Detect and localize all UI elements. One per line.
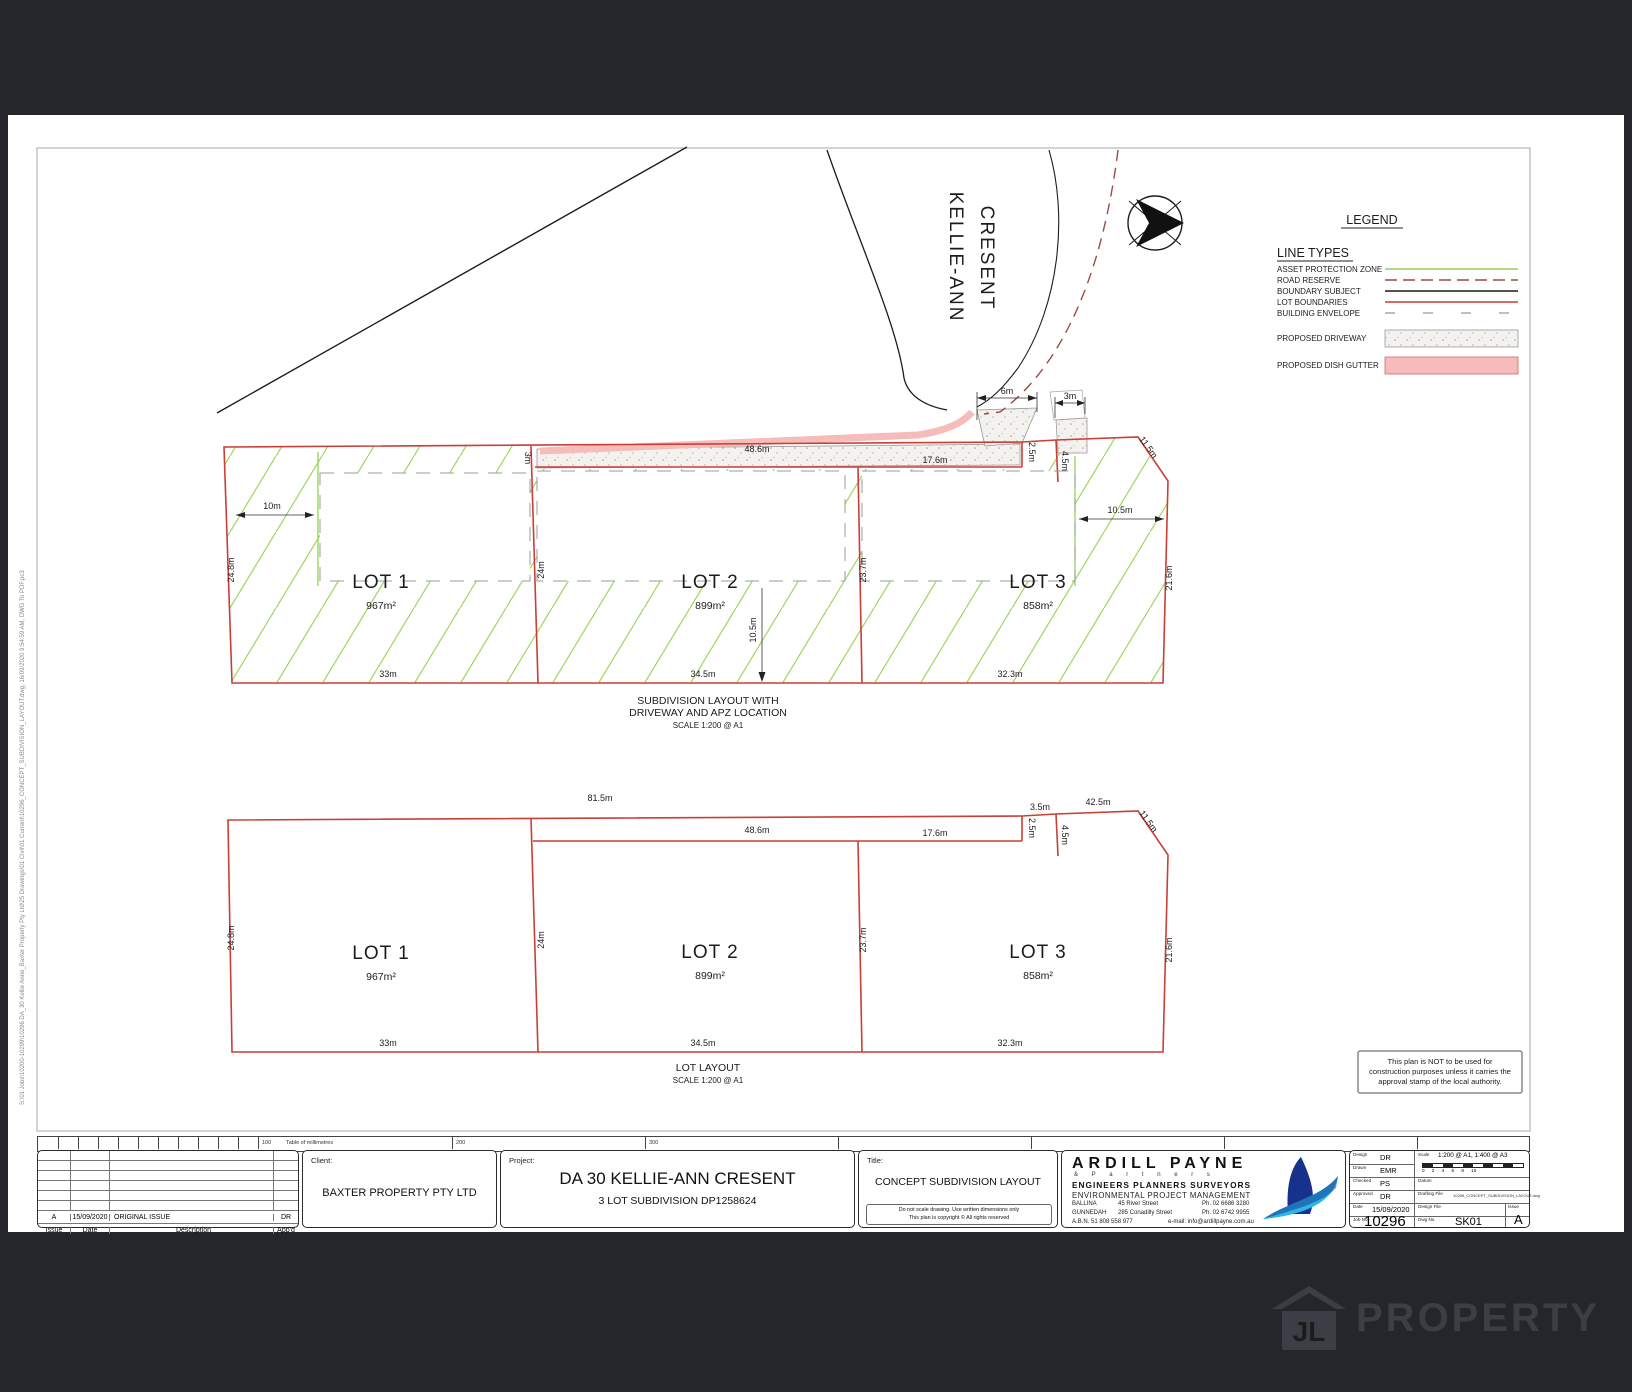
office-address: 285 Conadilly Street [1118,1210,1202,1216]
dim-label: 24.8m [226,925,236,950]
firm-name: ARDILL PAYNE [1072,1155,1247,1173]
note-box: This plan is NOT to be used for construc… [1358,1051,1522,1093]
revision-date: 15/09/2020 [71,1214,110,1221]
checked-label: Checked [1353,1178,1371,1183]
ruler-tick [1031,1137,1032,1149]
dim-label: 81.5m [587,793,612,803]
firm-partners: & P a r t n e r s [1074,1172,1216,1178]
dim-label: 3.5m [1030,802,1050,812]
lot-area: 967m² [366,600,396,612]
office-city: BALLINA [1072,1201,1118,1207]
job-number: 10296 [1364,1213,1406,1230]
street-name-line2: CRESENT [976,206,997,311]
envelope2-cover [537,471,845,581]
project-subtitle: 3 LOT SUBDIVISION DP1258624 [501,1195,854,1207]
top-plan-caption: DRIVEWAY AND APZ LOCATION [629,707,787,719]
title-box: Title: CONCEPT SUBDIVISION LAYOUT Do not… [858,1150,1058,1228]
note-line: construction purposes unless it carries … [1369,1067,1511,1076]
lot-boundaries-bottom [228,811,1168,1052]
revision-col-appd: App'd [273,1227,298,1234]
dim-label: 24m [536,561,546,579]
lot-name: LOT 2 [681,942,738,963]
revision-description: ORIGINAL ISSUE [110,1214,273,1221]
dim-label: 10.5m [748,617,758,642]
dim-label: 24.8m [226,557,236,582]
bottom-plan-caption: LOT LAYOUT [676,1062,741,1074]
watermark-monogram: JL [1293,1316,1326,1347]
revision-table: A 15/09/2020 ORIGINAL ISSUE DR Issue Dat… [37,1150,299,1228]
revision-col-date: Date [71,1227,110,1234]
screenshot-canvas: 6m 3m 2.5m 4.5m 48.6m 17.6m 11.5m 3m 10m… [0,0,1632,1392]
street-label: KELLIE-ANN CRESENT [945,192,997,323]
top-plan: 6m 3m 2.5m 4.5m 48.6m 17.6m 11.5m 3m 10m… [217,147,1174,730]
scale-label: Scale [1418,1152,1430,1157]
dim-label: 24m [536,931,546,949]
ruler-tick [1224,1137,1225,1149]
revision-issue: A [38,1214,71,1221]
legend-entry-label: ROAD RESERVE [1277,276,1340,285]
revision-col-issue: Issue [38,1227,71,1234]
dim-label: 3m [523,452,533,465]
note-line: This plan is NOT to be used for [1388,1057,1493,1066]
ruler-tick [452,1137,453,1149]
lot-name: LOT 3 [1009,942,1066,963]
drafting-file-label: Drafting File [1418,1191,1443,1196]
ruler-tick [645,1137,646,1149]
legend-title: LEGEND [1346,213,1397,227]
office-city: GUNNEDAH [1072,1210,1118,1216]
dwg-no-label: Dwg No. [1418,1217,1436,1222]
lot-name: LOT 2 [681,572,738,593]
disclaimer-line: This plan is copyright © All rights rese… [867,1215,1051,1221]
dim-label: 34.5m [690,1038,715,1048]
ruler-tick [1417,1137,1418,1149]
scale-bar-ticks: 0 2 4 6 8 10 [1422,1168,1526,1173]
dim-label: 6m [1001,386,1014,396]
lot-area: 899m² [695,970,725,982]
firm-office-row: BALLINA 45 River Street Ph. 02 6686 3280 [1072,1201,1262,1207]
lot-area: 858m² [1023,600,1053,612]
dim-label: 23.7m [858,927,868,952]
dim-label: 42.5m [1085,797,1110,807]
dim-label: 3m [1064,391,1077,401]
boundary-subject-line [217,147,687,413]
disclaimer-line: Do not scale drawing. Use written dimens… [867,1207,1051,1213]
client-box: Client: BAXTER PROPERTY PTY LTD [302,1150,497,1228]
plot-file-path: S:\01 Jobs\10200-10299\10296 DA_30 Kelli… [20,570,26,1105]
disclaimer-box: Do not scale drawing. Use written dimens… [866,1204,1052,1225]
legend-entry-label: BUILDING ENVELOPE [1277,309,1360,318]
date-label: Date [1353,1204,1363,1209]
dwg-no-value: SK01 [1455,1216,1482,1228]
legend-gutter-sample [1385,357,1518,374]
approved-label: Approved [1353,1191,1373,1196]
revision-row: A 15/09/2020 ORIGINAL ISSUE DR [38,1210,298,1223]
client-label: Client: [311,1156,332,1165]
lot3-driveway [1056,418,1087,453]
dim-label: 34.5m [690,669,715,679]
issue-label: Issue [1508,1204,1519,1209]
top-plan-scale: SCALE 1:200 @ A1 [673,721,744,730]
top-plan-caption: SUBDIVISION LAYOUT WITH [637,695,778,707]
ruler-number: 200 [456,1140,465,1146]
dim-label: 21.6m [1164,937,1174,962]
title-label: Title: [867,1156,883,1165]
legend-entry-label: LOT BOUNDARIES [1277,298,1348,307]
firm-disciplines: ENGINEERS PLANNERS SURVEYORS [1072,1180,1251,1190]
drawing-title: CONCEPT SUBDIVISION LAYOUT [859,1176,1057,1188]
ruler-tick [838,1137,839,1149]
design-value: DR [1380,1153,1391,1162]
legend-driveway-sample [1385,330,1518,347]
firm-office-row: GUNNEDAH 285 Conadilly Street Ph. 02 674… [1072,1210,1262,1216]
note-line: approval stamp of the local authority. [1378,1077,1502,1086]
lot-name: LOT 1 [352,572,409,593]
project-title: DA 30 KELLIE-ANN CRESENT [501,1169,854,1189]
ruler-ticks [58,1137,259,1149]
lot-area: 858m² [1023,970,1053,982]
revision-header: Issue Date Description App'd [38,1223,298,1236]
firm-abn-row: A.B.N. 51 808 558 977 e-mail: info@ardil… [1072,1219,1262,1225]
lot-name: LOT 1 [352,943,409,964]
dim-label: 33m [379,669,397,679]
north-arrow-icon [1128,196,1184,250]
firm-services: ENVIRONMENTAL PROJECT MANAGEMENT [1072,1191,1251,1200]
office-address: 45 River Street [1118,1201,1202,1207]
envelope1-cover [320,473,530,581]
drawn-label: Drawn [1353,1165,1366,1170]
dim-label: 32.3m [997,669,1022,679]
dim-label: 21.6m [1164,565,1174,590]
firm-box: ARDILL PAYNE & P a r t n e r s ENGINEERS… [1061,1150,1346,1228]
dim-label: 10m [263,501,281,511]
lot-name: LOT 3 [1009,572,1066,593]
dim-label: 2.5m [1027,818,1037,838]
office-phone: Ph. 02 6686 3280 [1202,1201,1262,1207]
ruler-number: 100 [262,1140,271,1146]
dim-label: 33m [379,1038,397,1048]
revision-col-description: Description [110,1227,273,1234]
bottom-plan-scale: SCALE 1:200 @ A1 [673,1076,744,1085]
revision-appd: DR [273,1214,298,1221]
street-name-line1: KELLIE-ANN [945,192,966,323]
legend-driveway-label: PROPOSED DRIVEWAY [1277,334,1367,343]
lot-boundary-outer [228,811,1168,1052]
dim-label: 11.5m [1137,808,1159,834]
dim-label: 48.6m [744,444,769,454]
project-box: Project: DA 30 KELLIE-ANN CRESENT 3 LOT … [500,1150,855,1228]
jl-property-watermark: JL PROPERTY [1272,1286,1600,1350]
dim-label: 32.3m [997,1038,1022,1048]
drawn-value: EMR [1380,1166,1397,1175]
drafting-file-value: 10296_CONCEPT_SUBDIVISION_LAYOUT.dwg [1453,1193,1540,1198]
sail-logo-icon [1258,1154,1342,1224]
legend-entry-label: ASSET PROTECTION ZONE [1277,265,1382,274]
design-file-label: Design File [1418,1204,1441,1209]
firm-abn: A.B.N. 51 808 558 977 [1072,1219,1168,1225]
ruler-caption: Table of millimetres [286,1140,333,1146]
lot-area: 899m² [695,600,725,612]
lot3-drive-edge [1056,814,1058,856]
office-phone: Ph. 02 6742 9955 [1202,1210,1262,1216]
dim-label: 10.5m [1107,505,1132,515]
dim-label: 17.6m [922,828,947,838]
envelope3-cover [862,471,1075,581]
dim-label: 4.5m [1060,451,1070,471]
road-reserve-line [984,150,1118,414]
legend-section: LINE TYPES [1277,246,1349,260]
legend-entry-label: BOUNDARY SUBJECT [1277,287,1361,296]
design-label: Design [1353,1152,1367,1157]
info-box: Design DR Drawn EMR Checked PS Approved … [1349,1150,1530,1228]
dim-label: 4.5m [1060,825,1070,845]
approved-value: DR [1380,1192,1391,1201]
ruler-number: 300 [649,1140,658,1146]
legend: LEGEND LINE TYPES ASSET PROTECTION ZONE … [1277,213,1518,374]
legend-gutter-label: PROPOSED DISH GUTTER [1277,361,1379,370]
firm-email: e-mail: info@ardillpayne.com.au [1168,1219,1254,1225]
checked-value: PS [1380,1179,1390,1188]
dim-label: 23.7m [858,557,868,582]
client-name: BAXTER PROPERTY PTY LTD [303,1187,496,1199]
road-edge-left [827,150,947,410]
house-logo-icon: JL [1272,1286,1346,1350]
project-label: Project: [509,1156,534,1165]
issue-value: A [1514,1212,1523,1227]
bottom-plan: 81.5m 48.6m 17.6m 3.5m 42.5m 2.5m 4.5m 1… [226,793,1174,1085]
watermark-text: PROPERTY [1356,1296,1600,1341]
lot-area: 967m² [366,971,396,983]
dim-label: 17.6m [922,455,947,465]
datum-label: Datum [1418,1178,1432,1183]
dim-label: 2.5m [1027,442,1037,462]
scale-value: 1:200 @ A1, 1:400 @ A3 [1438,1152,1508,1159]
dim-label: 48.6m [744,825,769,835]
